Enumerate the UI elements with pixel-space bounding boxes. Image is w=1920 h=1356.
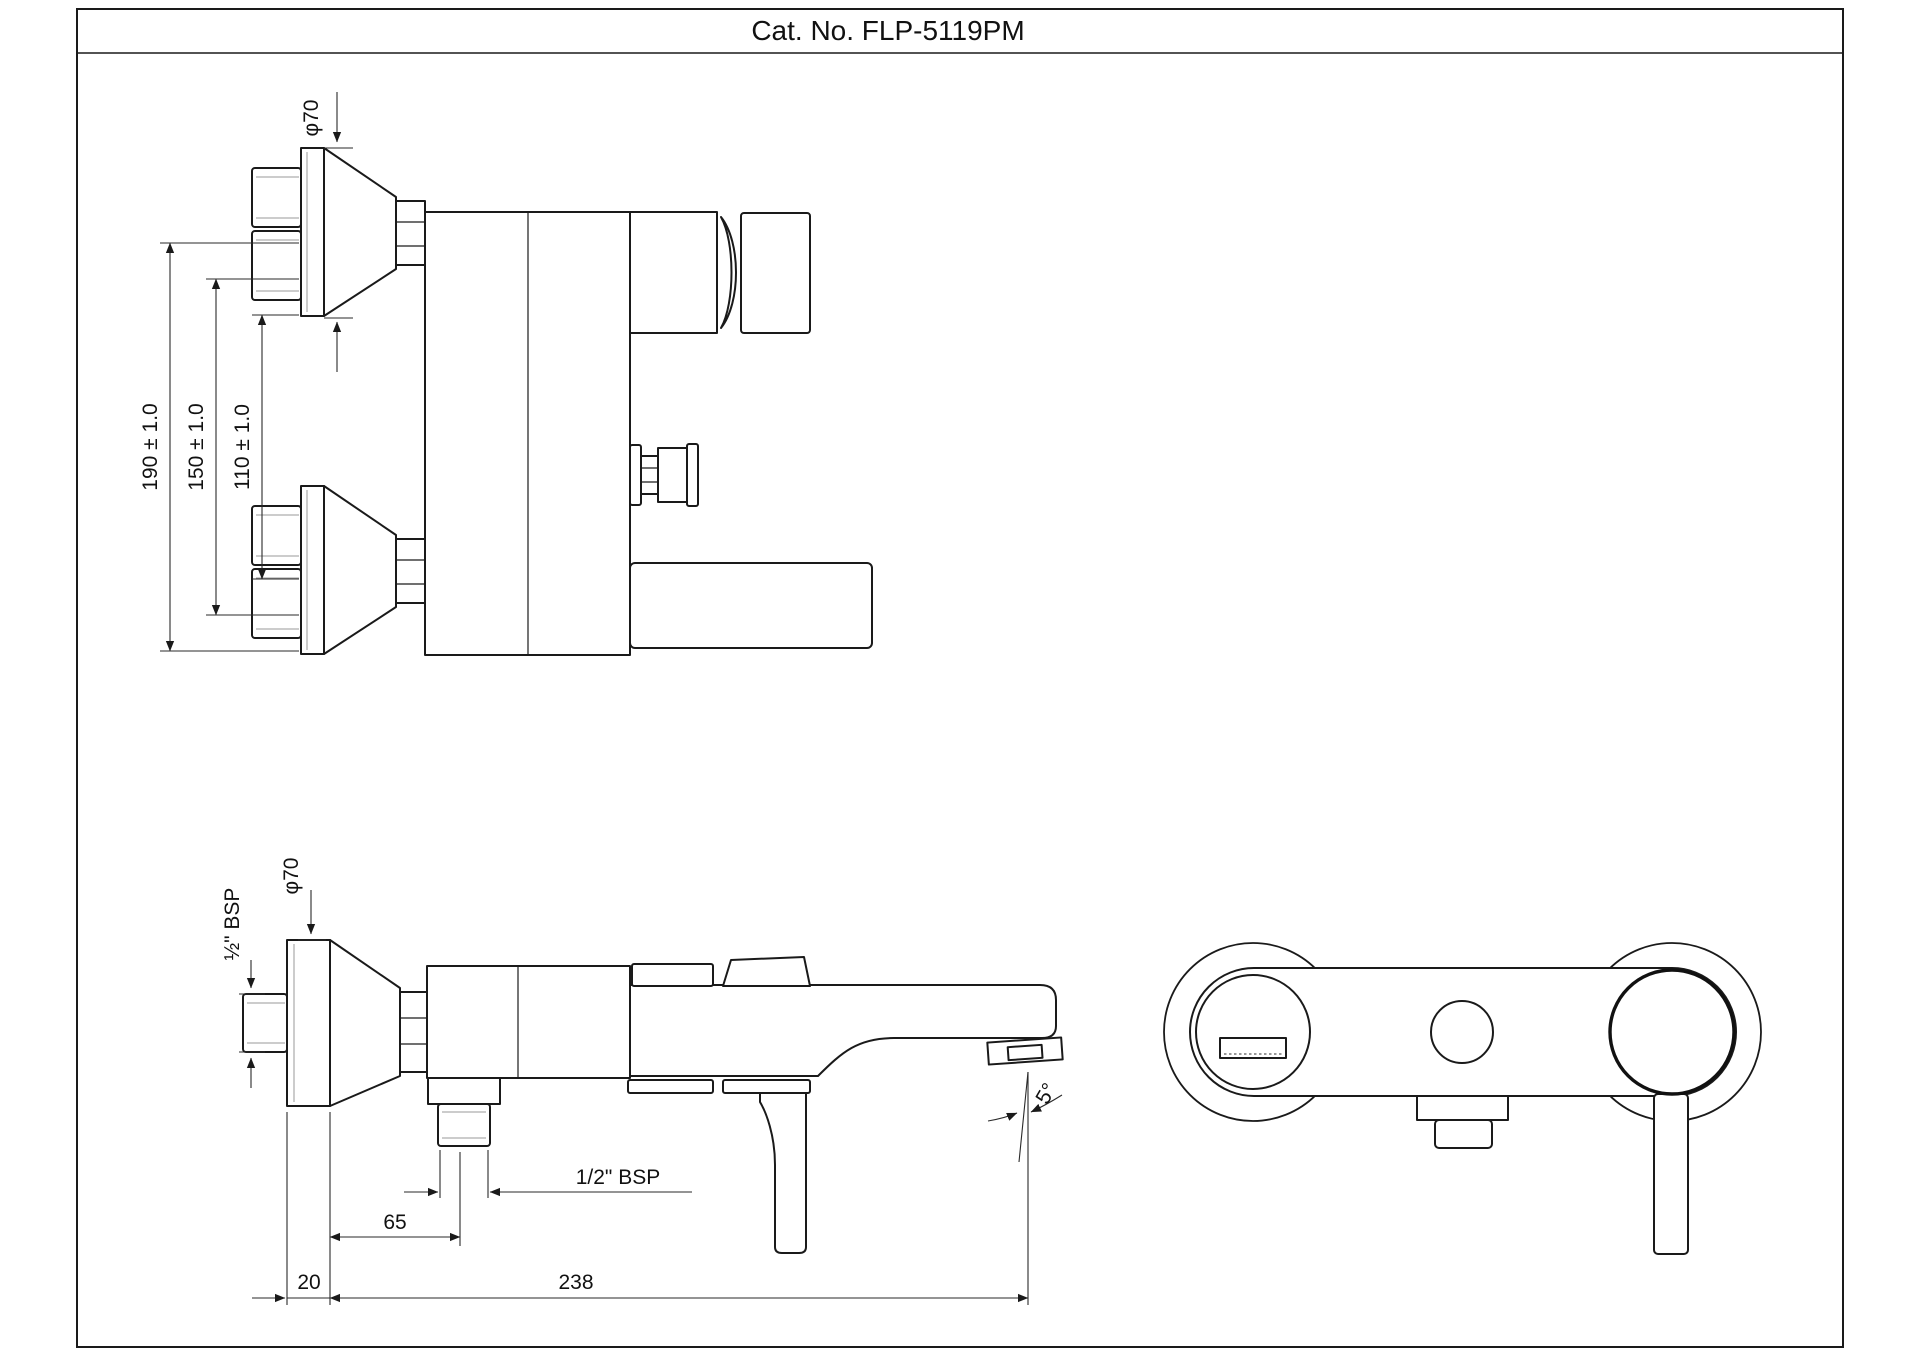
drawing-title: Cat. No. FLP-5119PM bbox=[751, 15, 1024, 46]
dim-190: 190 ± 1.0 bbox=[139, 403, 162, 490]
front-collar bbox=[632, 964, 713, 986]
top-diverter-knob bbox=[630, 444, 698, 506]
dim-150: 150 ± 1.0 bbox=[185, 403, 208, 490]
front-shower-outlet bbox=[428, 1078, 500, 1146]
dim-phi70-top: φ70 bbox=[300, 100, 323, 137]
face-handle-base-circle bbox=[1610, 970, 1734, 1094]
dim-20: 20 bbox=[297, 1271, 320, 1294]
dim-bsp-vertical: ½" BSP bbox=[221, 888, 244, 961]
dim-110: 110 ± 1.0 bbox=[231, 404, 254, 490]
front-trim-right bbox=[723, 1080, 810, 1093]
front-body bbox=[427, 966, 630, 1078]
dim-238: 238 bbox=[558, 1271, 593, 1294]
wall-flange bbox=[287, 940, 330, 1106]
face-aerator bbox=[1220, 1038, 1286, 1058]
dim-65: 65 bbox=[383, 1211, 406, 1234]
top-spout bbox=[630, 563, 872, 648]
handle-end-cap bbox=[741, 213, 810, 333]
front-trim-left bbox=[628, 1080, 713, 1093]
cartridge-housing bbox=[630, 212, 717, 333]
dim-bsp-horizontal: 1/2" BSP bbox=[576, 1166, 661, 1189]
wall-flange bbox=[301, 148, 324, 316]
face-lever bbox=[1654, 1094, 1688, 1254]
front-aerator bbox=[987, 1037, 1062, 1064]
dim-phi70-front: φ70 bbox=[280, 858, 303, 895]
front-handle-edge bbox=[723, 957, 810, 986]
wall-flange bbox=[301, 486, 324, 654]
drawing-sheet: Cat. No. FLP-5119PM bbox=[0, 0, 1920, 1356]
